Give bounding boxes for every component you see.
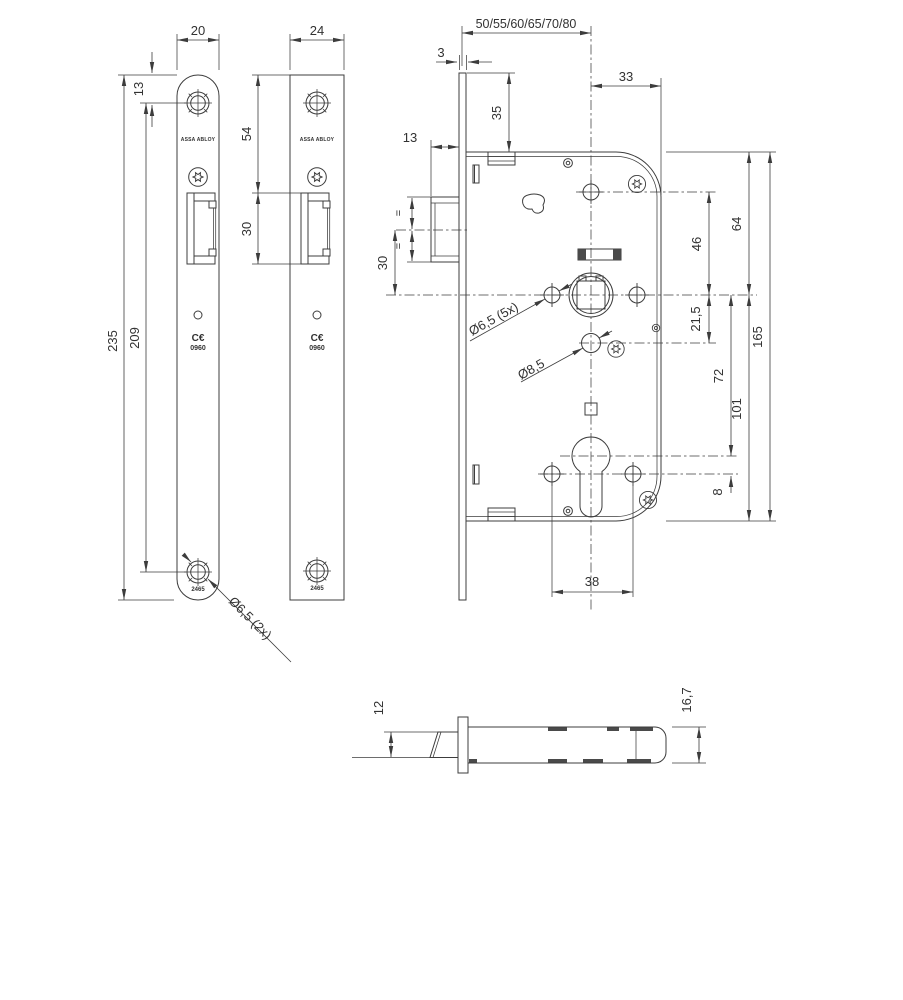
brand-logo: ASSA ABLOY xyxy=(181,137,216,143)
ce-mark: C€ xyxy=(311,333,324,344)
dim-plate-end-to-case: 35 xyxy=(489,106,504,120)
ce-mark: C€ xyxy=(192,333,205,344)
bottom-mounting-tab xyxy=(488,508,515,521)
plate2-latch-cutout xyxy=(301,193,330,264)
plate2-top-screw xyxy=(303,89,331,117)
front-plate-rounded: ASSA ABLOY C€ 0960 2465 xyxy=(177,75,219,600)
dim-spindle-to-case-bottom: 101 xyxy=(729,398,744,420)
extension-lines xyxy=(118,26,776,763)
top-mounting-tab xyxy=(488,152,515,165)
dim-plate2-top-to-cutout: 54 xyxy=(239,127,254,141)
dim-plate-length: 235 xyxy=(105,330,120,352)
dim-cutout-height: 30 xyxy=(239,222,254,236)
irregular-hole xyxy=(523,194,545,213)
plate2-torx-screw xyxy=(308,168,327,187)
dim-plate-holes-dia: Ø6,5 (2x) xyxy=(226,594,275,643)
faceplate-bottom-view xyxy=(458,717,468,773)
dim-spindle-to-aux-hole: 21,5 xyxy=(688,306,703,331)
case-screw-bottom xyxy=(564,507,573,516)
dim-equal-upper: = xyxy=(393,210,405,216)
product-code: 2465 xyxy=(310,586,324,592)
product-code: 2465 xyxy=(191,587,205,593)
dim-case-holes-dia: Ø6,5 (5x) xyxy=(466,299,521,339)
dim-latch-projection: 13 xyxy=(403,130,417,145)
faceplate-side xyxy=(459,73,466,600)
case-inner-edge xyxy=(466,157,657,517)
plate1-torx-screw xyxy=(189,168,208,187)
dim-latch-to-spindle: 30 xyxy=(375,256,390,270)
latch-bolt-side xyxy=(431,197,459,262)
case-bottom-tabs xyxy=(469,728,653,763)
brand-logo: ASSA ABLOY xyxy=(300,137,335,143)
latch-bolt-bottom-view xyxy=(430,732,458,758)
dim-plate1-width: 20 xyxy=(191,23,205,38)
dim-faceplate-thickness: 3 xyxy=(437,45,444,60)
lock-case-side-view xyxy=(431,73,661,600)
case-torx-top-right xyxy=(628,175,645,192)
dim-plate2-width: 24 xyxy=(310,23,324,38)
dim-case-height: 165 xyxy=(750,326,765,348)
plate1-bottom-screw xyxy=(184,558,212,586)
ce-number: 0960 xyxy=(190,345,206,352)
drawing-sheet: ASSA ABLOY C€ 0960 2465 ASSA ABLOY C€ 09… xyxy=(0,0,903,1000)
dim-aux-hole-dia: Ø8,5 xyxy=(515,356,547,383)
dim-plate-holes-cc: 209 xyxy=(127,327,142,349)
case-screw-right xyxy=(652,324,659,331)
dim-backset-options: 50/55/60/65/70/80 xyxy=(476,17,577,31)
bottom-slot xyxy=(473,465,479,484)
dim-spindle-to-case-back: 33 xyxy=(619,69,633,84)
dim-cylinder-to-fix-holes: 8 xyxy=(710,488,725,495)
plate2-bottom-screw xyxy=(303,557,331,585)
dim-case-thickness: 16,7 xyxy=(679,687,694,712)
dim-plate-top-to-hole: 13 xyxy=(131,82,146,96)
dimension-lines xyxy=(124,33,770,763)
plate1-small-hole xyxy=(194,311,202,319)
plate2-small-hole xyxy=(313,311,321,319)
ce-number: 0960 xyxy=(309,345,325,352)
dim-top-hole-to-spindle: 46 xyxy=(689,237,704,251)
front-plate-square: ASSA ABLOY C€ 0960 2465 xyxy=(290,75,344,600)
lock-case-bottom-view xyxy=(430,717,666,773)
plate1-top-screw xyxy=(184,89,212,117)
dimension-labels: 20 24 13 235 209 54 30 Ø6,5 (2x) 50/55/6… xyxy=(105,17,765,715)
dim-spindle-to-cylinder: 72 xyxy=(711,369,726,383)
dim-latch-width: 12 xyxy=(371,701,386,715)
lock-technical-drawing: ASSA ABLOY C€ 0960 2465 ASSA ABLOY C€ 09… xyxy=(0,0,903,1000)
case-screw-top xyxy=(564,159,573,168)
plate1-latch-cutout xyxy=(187,193,216,264)
stop-slide xyxy=(578,249,621,260)
dim-fix-holes-cc: 38 xyxy=(585,574,599,589)
top-slot xyxy=(473,165,479,183)
dim-equal-lower: = xyxy=(393,243,405,249)
dim-case-top-to-spindle: 64 xyxy=(729,217,744,231)
